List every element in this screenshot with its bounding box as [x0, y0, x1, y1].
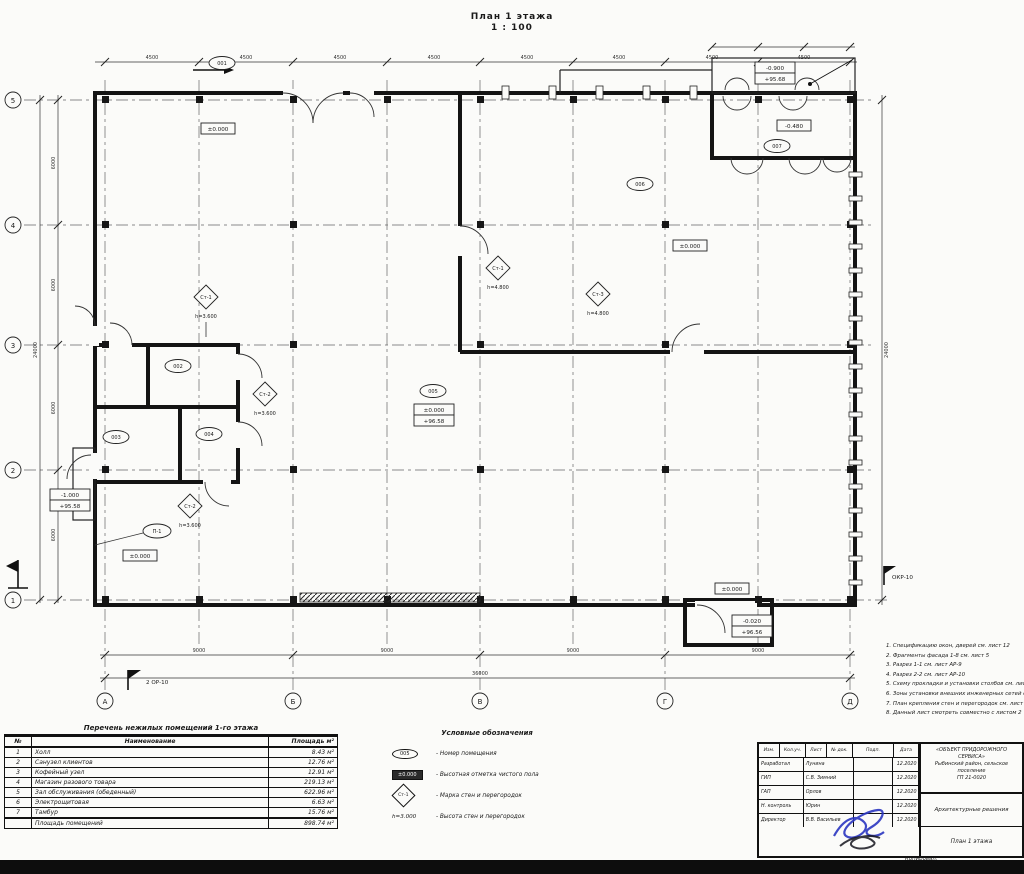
- legend: Условные обозначения 005 - Номер помещен…: [392, 729, 582, 827]
- legend-item-text: - Высота стен и перегородок: [436, 814, 525, 820]
- wall-mark-1: Ст-1: [200, 295, 211, 301]
- table-total-row: Площадь помещений 898.74 м²: [5, 818, 338, 829]
- title-block-header: Изм. Кол.уч. Лист № док. Подп. Дата: [759, 744, 919, 758]
- row-area: 8.43 м²: [269, 747, 338, 758]
- note-line: 5. Схему прокладки и установки столбов с…: [886, 680, 1024, 690]
- building-walls: [95, 93, 855, 645]
- room-oval-5: 005: [428, 389, 438, 395]
- row-area: 6.63 м²: [269, 798, 338, 808]
- tb-signature: [854, 786, 893, 799]
- dim-top-1: 4500: [146, 55, 159, 61]
- title-block-right: «ОБЪЕКТ ПРИДОРОЖНОГО СЕРВИСА» Рыбинский …: [921, 744, 1022, 856]
- room-oval-6: 006: [635, 182, 645, 188]
- hdr-koluch: Кол.уч.: [780, 744, 806, 757]
- section-flag-bottom-label: 2 ОР-10: [146, 680, 169, 686]
- room-oval-2: 002: [173, 364, 183, 370]
- tb-signature: [854, 800, 893, 813]
- room-oval-4: 004: [204, 432, 214, 438]
- note-line: 1. Спецификацию окон, дверей см. лист 12: [886, 642, 1024, 652]
- dim-top-2: 4500: [240, 55, 253, 61]
- hdr-data: Дата: [894, 744, 919, 757]
- rooms-header-area: Площадь м²: [269, 737, 338, 748]
- leader-line: [810, 60, 852, 84]
- wall-mark-3: Ст-1: [492, 266, 503, 272]
- tb-signature: [854, 772, 893, 785]
- row-num: 6: [5, 798, 32, 808]
- total-label: Площадь помещений: [32, 818, 269, 829]
- legend-item: 005 - Номер помещения: [392, 743, 582, 764]
- tb-date: 12.2020: [893, 814, 919, 827]
- height-symbol: h=3.000: [392, 814, 416, 820]
- row-num: 3: [5, 768, 32, 778]
- legend-item-text: - Высотная отметка чистого пола: [436, 772, 539, 778]
- dim-right-total: 24000: [884, 342, 890, 358]
- dim-bottom-4: 9000: [752, 648, 765, 654]
- row-num: 7: [5, 808, 32, 819]
- legend-item: Ст-1 - Марка стен и перегородок: [392, 785, 582, 806]
- table-row: 7 Тамбур 15.76 м²: [5, 808, 338, 819]
- room-oval-7: 007: [772, 144, 782, 150]
- note-line: 2. Фрагменты фасада 1-8 см. лист 5: [886, 652, 1024, 662]
- row-num: 2: [5, 758, 32, 768]
- hdr-izm: Изм.: [759, 744, 780, 757]
- elev-2: ±0.000: [680, 244, 701, 250]
- hdr-list: Лист: [806, 744, 827, 757]
- hdr-podp: Подп.: [853, 744, 894, 757]
- legend-title: Условные обозначения: [392, 729, 582, 737]
- drawing-sheet: План 1 этажа 1 : 100: [0, 0, 1024, 874]
- dim-top-3: 4500: [334, 55, 347, 61]
- table-row: 2 Санузел клиентов 12.76 м²: [5, 758, 338, 768]
- annotation-symbols: [6, 60, 852, 588]
- section-name: Архитектурные решения: [921, 794, 1022, 827]
- row-name: Кофейный узел: [32, 768, 269, 778]
- panel-mark-oval: П-1: [153, 529, 162, 535]
- note-line: 8. Данный лист смотреть совместно с лист…: [886, 709, 1024, 719]
- table-row: 5 Зал обслуживания (обеденный) 622.96 м²: [5, 788, 338, 798]
- table-row: 4 Магазин разового товара 219.13 м²: [5, 778, 338, 788]
- note-line: 6. Зоны установки внешних инженерных сет…: [886, 690, 1024, 700]
- tb-role: ГИП: [759, 772, 804, 785]
- elev-stack-2a: -0.900: [766, 66, 784, 72]
- plan-scale-text: 1 : 100: [491, 23, 533, 33]
- door-openings: [91, 89, 757, 609]
- benchmark-flag: [6, 560, 18, 572]
- wall-mark-symbol: Ст-1: [391, 783, 415, 807]
- elev-stack-3b: +96.56: [742, 630, 763, 636]
- tb-signature: [854, 814, 893, 827]
- note-line: 4. Разрез 2-2 см. лист АР-10: [886, 671, 1024, 681]
- elev-4: ±0.000: [722, 587, 743, 593]
- tb-name: Орлов: [804, 786, 854, 799]
- legend-item-text: - Марка стен и перегородок: [436, 793, 522, 799]
- wall-mark-diamonds: Ст-1 h=3.600 Ст-2 h=3.600 Ст-1 h=4.800 С…: [178, 256, 610, 529]
- elev-5: ±0.000: [130, 554, 151, 560]
- title-block-row: ГИП С.В. Зимний 12.2020: [759, 772, 919, 786]
- wall-mark-5-h: h=3.600: [179, 523, 201, 529]
- row-name: Зал обслуживания (обеденный): [32, 788, 269, 798]
- project-line-1: «ОБЪЕКТ ПРИДОРОЖНОГО СЕРВИСА»: [923, 747, 1020, 761]
- dim-left-4: 6000: [51, 529, 57, 542]
- row-name: Тамбур: [32, 808, 269, 819]
- dim-bottom-total: 36000: [472, 671, 488, 677]
- axis-row-4: 4: [11, 222, 16, 230]
- legend-item: ±0.000 - Высотная отметка чистого пола: [392, 764, 582, 785]
- row-area: 219.13 м²: [269, 778, 338, 788]
- tb-name: Лунина: [804, 758, 854, 771]
- axis-col-b: Б: [291, 698, 296, 706]
- elev-stack-4b: +95.58: [60, 504, 81, 510]
- project-line-2: Рыбинский район, сельское поселение: [923, 761, 1020, 775]
- row-area: 15.76 м²: [269, 808, 338, 819]
- tb-name: С.В. Зимний: [804, 772, 854, 785]
- dim-left-2: 6000: [51, 279, 57, 292]
- ramp-hatch: [300, 593, 480, 602]
- row-area: 622.96 м²: [269, 788, 338, 798]
- axis-col-g: Г: [663, 698, 667, 706]
- title-block-row: Разработал Лунина 12.2020: [759, 758, 919, 772]
- axis-markers: 5 4 3 2 1 А Б В Г Д: [5, 92, 858, 709]
- row-name: Холл: [32, 747, 269, 758]
- axis-col-a: А: [103, 698, 108, 706]
- axis-row-5: 5: [11, 97, 15, 105]
- rooms-table-caption: Перечень нежилых помещений 1-го этажа: [4, 722, 338, 736]
- table-row: 6 Электрощитовая 6.63 м²: [5, 798, 338, 808]
- plan-title-text: План 1 этажа: [471, 12, 554, 22]
- wall-mark-4: Ст-3: [592, 292, 603, 298]
- row-area: 12.91 м²: [269, 768, 338, 778]
- wall-mark-5: Ст-2: [184, 504, 195, 510]
- axis-row-1: 1: [11, 597, 15, 605]
- rooms-table: Перечень нежилых помещений 1-го этажа № …: [4, 722, 338, 829]
- section-flags: 2 ОР-10 ОКР-10: [128, 566, 913, 690]
- table-row: 1 Холл 8.43 м²: [5, 747, 338, 758]
- total-num: [5, 818, 32, 829]
- row-name: Санузел клиентов: [32, 758, 269, 768]
- row-num: 5: [5, 788, 32, 798]
- tb-signature: [854, 758, 893, 771]
- rooms-header-num: №: [5, 737, 32, 748]
- project-line-3: ГП 21-0020: [923, 775, 1020, 782]
- room-oval-1: 001: [217, 61, 227, 67]
- elev-stack-1b: +96.58: [424, 419, 445, 425]
- tb-date: 12.2020: [893, 800, 919, 813]
- title-block-row: ГАП Орлов 12.2020: [759, 786, 919, 800]
- dim-left-total: 24000: [33, 342, 39, 358]
- dim-top-5: 4500: [521, 55, 534, 61]
- row-name: Электрощитовая: [32, 798, 269, 808]
- table-row: 3 Кофейный узел 12.91 м²: [5, 768, 338, 778]
- dim-bottom-1: 9000: [193, 648, 206, 654]
- floor-plan-drawing: План 1 этажа 1 : 100: [0, 0, 1024, 730]
- elev-stack-2b: +95.68: [765, 77, 786, 83]
- title-block-row: Директор В.В. Васильев 12.2020: [759, 814, 919, 827]
- elevation-symbol: ±0.000: [392, 770, 423, 780]
- columns: [102, 96, 854, 603]
- wall-mark-symbol-text: Ст-1: [398, 793, 408, 798]
- dim-bottom-2: 9000: [381, 648, 394, 654]
- note-line: 3. Разрез 1-1 см. лист АР-9: [886, 661, 1024, 671]
- elev-stack-1a: ±0.000: [424, 408, 445, 414]
- room-number-symbol: 005: [392, 749, 418, 759]
- notes-list: 1. Спецификацию окон, дверей см. лист 12…: [886, 642, 1024, 719]
- dim-left-1: 6000: [51, 157, 57, 170]
- hdr-dok: № док.: [827, 744, 853, 757]
- dim-top-6: 4500: [613, 55, 626, 61]
- leader-dot: [808, 82, 812, 86]
- legend-item: h=3.000 - Высота стен и перегородок: [392, 806, 582, 827]
- elev-stack-3a: -0.020: [743, 619, 761, 625]
- dim-left-3: 6000: [51, 402, 57, 415]
- wall-mark-1-h: h=3.600: [195, 314, 217, 320]
- dim-top-4: 4500: [428, 55, 441, 61]
- bottom-black-bar: [0, 860, 1024, 874]
- axis-col-v: В: [478, 698, 483, 706]
- title-block-row: Н. контроль Юрин 12.2020: [759, 800, 919, 814]
- elev-stack-4a: -1.000: [61, 493, 79, 499]
- note-line: 7. План крепления стен и перегородок см.…: [886, 700, 1024, 710]
- tb-name: В.В. Васильев: [804, 814, 854, 827]
- title-block: Изм. Кол.уч. Лист № док. Подп. Дата Разр…: [757, 742, 1024, 858]
- tb-name: Юрин: [804, 800, 854, 813]
- room-oval-3: 003: [111, 435, 121, 441]
- tb-date: 12.2020: [893, 772, 919, 785]
- wall-mark-2: Ст-2: [259, 392, 270, 398]
- wall-mark-4-h: h=4.800: [587, 311, 609, 317]
- row-num: 1: [5, 747, 32, 758]
- drawing-title: План 1 этажа 1 : 100: [471, 12, 554, 33]
- title-block-left: Изм. Кол.уч. Лист № док. Подп. Дата Разр…: [759, 744, 921, 856]
- wall-mark-3-h: h=4.800: [487, 285, 509, 291]
- project-name: «ОБЪЕКТ ПРИДОРОЖНОГО СЕРВИСА» Рыбинский …: [921, 744, 1022, 794]
- tb-role: Директор: [759, 814, 804, 827]
- row-name: Магазин разового товара: [32, 778, 269, 788]
- wall-mark-2-h: h=3.600: [254, 411, 276, 417]
- legend-item-text: - Номер помещения: [436, 751, 497, 757]
- secondary-walls: [73, 58, 855, 520]
- elev-3: -0.480: [785, 124, 803, 130]
- tb-role: ГАП: [759, 786, 804, 799]
- row-num: 4: [5, 778, 32, 788]
- axis-row-3: 3: [11, 342, 15, 350]
- tb-role: Н. контроль: [759, 800, 804, 813]
- sheet-name: План 1 этажа: [921, 827, 1022, 856]
- panel-leader: [95, 533, 143, 545]
- dim-bottom-3: 9000: [567, 648, 580, 654]
- section-flag-right-label: ОКР-10: [892, 575, 913, 581]
- tb-date: 12.2020: [893, 758, 919, 771]
- axis-col-d: Д: [847, 698, 853, 706]
- row-area: 12.76 м²: [269, 758, 338, 768]
- tb-date: 12.2020: [893, 786, 919, 799]
- elev-1: ±0.000: [208, 127, 229, 133]
- facade-elements: [300, 86, 862, 602]
- total-area: 898.74 м²: [269, 818, 338, 829]
- tb-role: Разработал: [759, 758, 804, 771]
- rooms-header-name: Наименование: [32, 737, 269, 748]
- axis-row-2: 2: [11, 467, 15, 475]
